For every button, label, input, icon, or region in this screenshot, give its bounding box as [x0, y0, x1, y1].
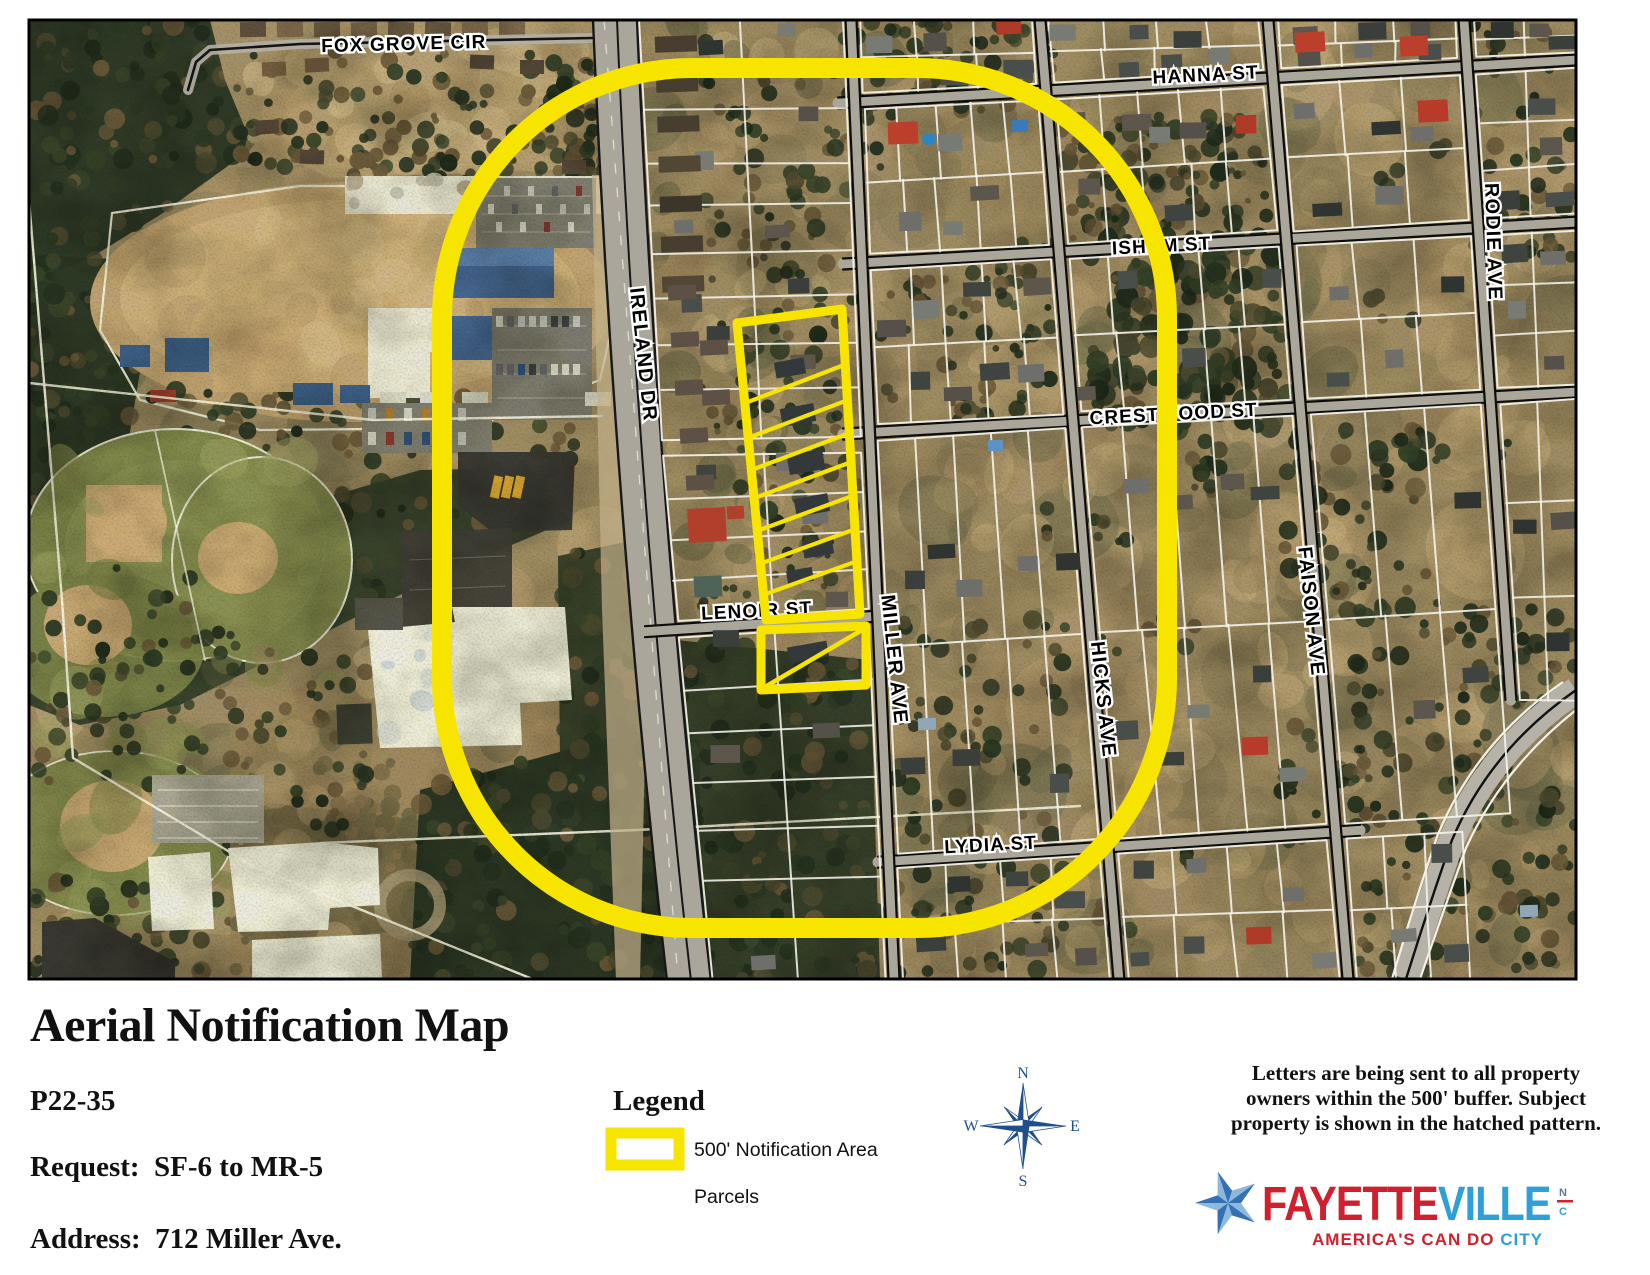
svg-text:S: S [1019, 1173, 1028, 1190]
svg-text:RODIE AVE: RODIE AVE [1480, 183, 1506, 301]
svg-text:N: N [1017, 1065, 1029, 1082]
svg-text:Parcels: Parcels [694, 1186, 759, 1208]
svg-text:W: W [963, 1118, 979, 1135]
svg-text:Letters are being sent to all: Letters are being sent to all property [1252, 1061, 1581, 1085]
svg-text:Request: SF-6 to MR-5: Request: SF-6 to MR-5 [30, 1151, 323, 1183]
svg-text:property is shown in the hatch: property is shown in the hatched pattern… [1231, 1111, 1601, 1135]
svg-text:E: E [1070, 1118, 1080, 1135]
svg-text:Aerial Notification Map: Aerial Notification Map [30, 999, 509, 1052]
svg-text:P22-35: P22-35 [30, 1085, 115, 1117]
svg-text:N: N [1559, 1187, 1567, 1199]
svg-text:FAYETTEVILLE: FAYETTEVILLE [1262, 1177, 1551, 1231]
svg-text:Address: 712 Miller Ave.: Address: 712 Miller Ave. [30, 1223, 342, 1255]
svg-text:C: C [1559, 1206, 1567, 1218]
svg-text:owners within the 500' buffer.: owners within the 500' buffer. Subject [1246, 1086, 1586, 1110]
svg-text:500' Notification Area: 500' Notification Area [694, 1139, 878, 1161]
svg-text:AMERICA'S CAN DO CITY: AMERICA'S CAN DO CITY [1312, 1230, 1543, 1249]
svg-text:Legend: Legend [613, 1085, 705, 1117]
svg-text:FOX GROVE CIR: FOX GROVE CIR [321, 32, 487, 57]
